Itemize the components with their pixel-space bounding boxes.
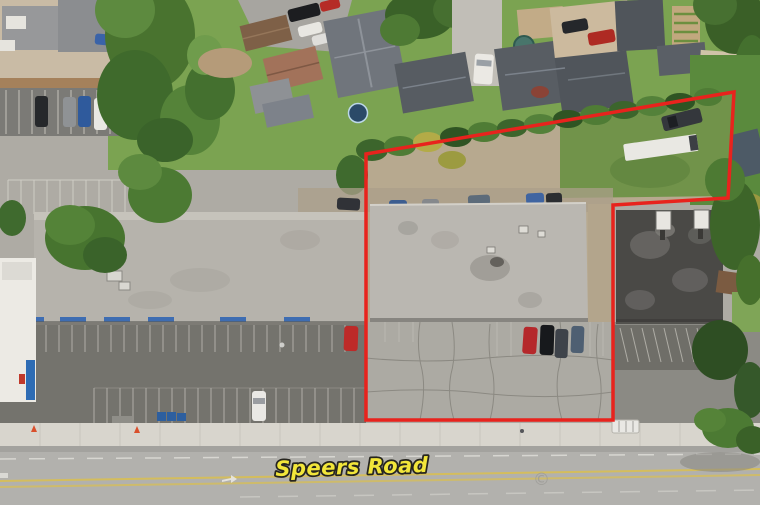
subject-building <box>370 203 588 323</box>
car-red-front <box>522 327 538 355</box>
car-dark-suv <box>35 96 48 127</box>
car-white-sedan <box>252 391 266 421</box>
pool-round <box>349 104 368 123</box>
handicap-marking <box>280 343 285 348</box>
aerial-scene: © Speers Road <box>0 0 760 505</box>
copyright-watermark: © <box>533 470 550 490</box>
pavement-patch <box>112 416 132 423</box>
car-black-front <box>539 325 554 355</box>
hvac-unit <box>656 211 671 230</box>
aerial-photo: © Speers Road <box>0 0 760 505</box>
road-name-label: Speers Road <box>275 453 429 481</box>
car-charcoal-front <box>554 329 568 358</box>
rooftop-unit <box>538 231 545 237</box>
blue-sign-band <box>26 360 35 400</box>
storefront-building-white <box>0 258 36 402</box>
hydrant-dot <box>520 429 524 433</box>
car-gray <box>63 97 76 127</box>
neighbor-building-dark-roof <box>616 210 723 324</box>
car-red-left-lot <box>344 326 359 351</box>
subject-front-apron <box>366 322 613 420</box>
rooftop-unit <box>519 226 528 233</box>
dirt-patch <box>198 48 252 78</box>
rooftop-unit <box>119 282 130 290</box>
hvac-unit <box>694 210 709 229</box>
partial-arrow-marking <box>0 473 8 478</box>
van-white-driveway <box>473 53 494 84</box>
sidewalk <box>0 423 760 447</box>
car-slate-front <box>571 326 585 353</box>
side-yard-dirt <box>588 204 613 322</box>
front-parking-lot-left <box>0 325 366 425</box>
van-white-curb <box>612 420 639 433</box>
red-sign <box>19 374 25 384</box>
car-blue <box>78 96 91 127</box>
carts-blue <box>157 412 186 421</box>
rooftop-unit <box>487 247 495 253</box>
